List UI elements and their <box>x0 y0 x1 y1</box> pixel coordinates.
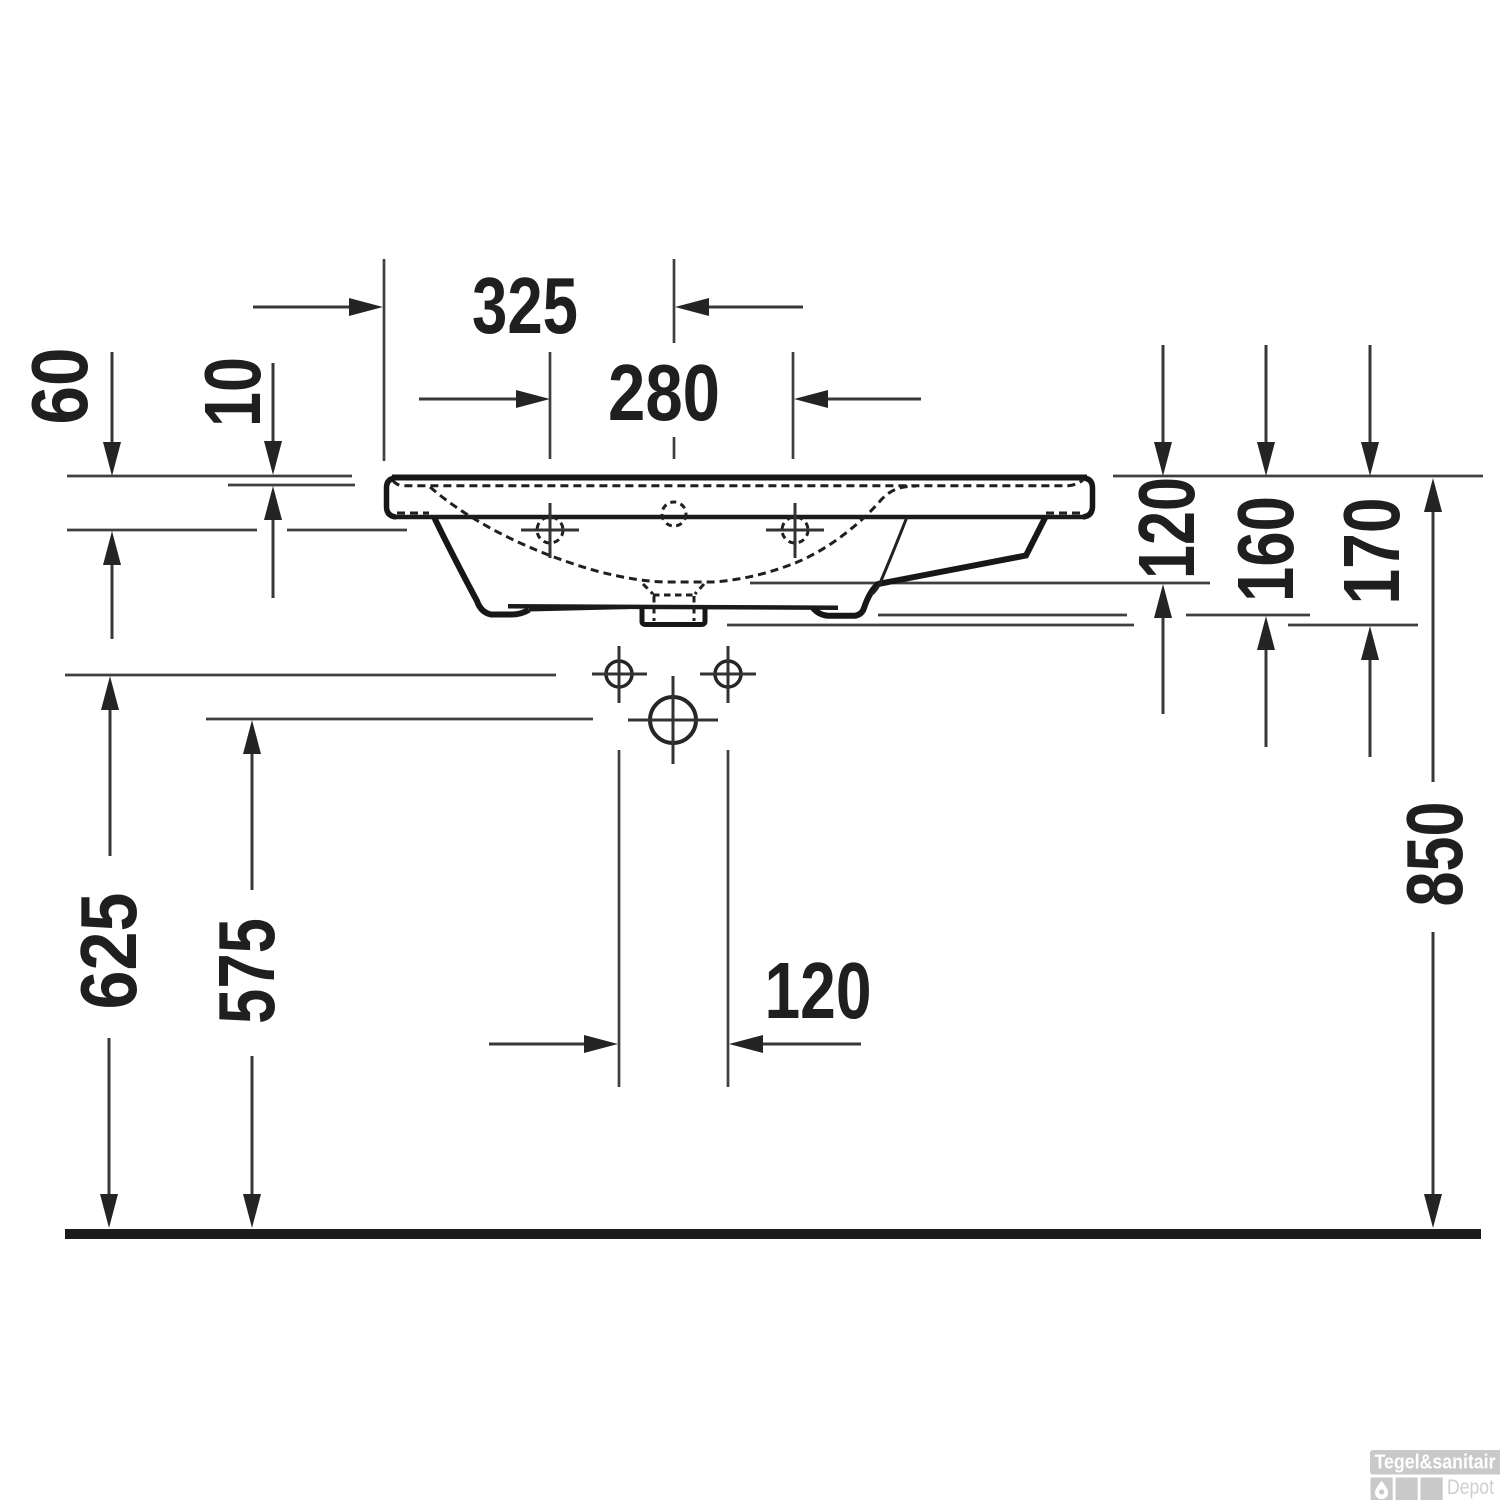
svg-text:120: 120 <box>765 946 872 1035</box>
svg-text:160: 160 <box>1221 496 1310 602</box>
svg-text:Depot: Depot <box>1447 1476 1494 1499</box>
svg-text:170: 170 <box>1327 498 1416 605</box>
svg-text:10: 10 <box>188 357 277 427</box>
svg-text:625: 625 <box>64 893 153 1010</box>
svg-text:575: 575 <box>202 918 291 1024</box>
svg-text:850: 850 <box>1390 802 1479 907</box>
svg-text:325: 325 <box>472 261 578 350</box>
svg-text:60: 60 <box>15 348 104 425</box>
svg-text:Tegel&sanitair: Tegel&sanitair <box>1375 1452 1496 1474</box>
svg-text:120: 120 <box>1122 477 1211 579</box>
svg-text:280: 280 <box>608 348 720 437</box>
